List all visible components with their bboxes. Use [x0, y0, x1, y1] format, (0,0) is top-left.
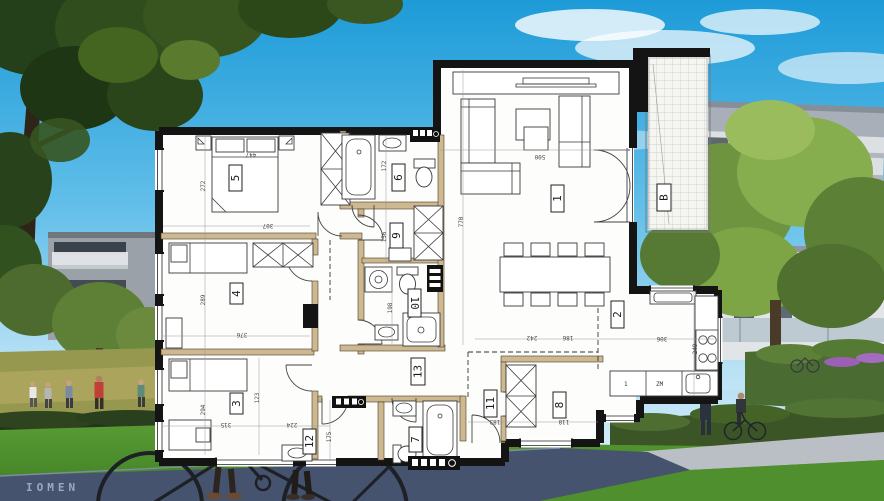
bathtub-icon — [342, 135, 375, 199]
svg-text:183: 183 — [489, 418, 500, 425]
shower-icon — [403, 313, 440, 346]
washing-machine-icon — [365, 267, 392, 292]
wardrobe-icon — [253, 243, 313, 267]
hall11-furniture — [506, 365, 536, 427]
side-table-icon — [524, 127, 548, 150]
cabinet-label: 1 — [624, 381, 628, 388]
vent-shaft — [332, 396, 366, 408]
sofa-icon — [461, 99, 495, 163]
fridge-icon — [650, 291, 696, 304]
svg-text:1: 1 — [551, 195, 564, 202]
svg-text:10: 10 — [408, 296, 421, 309]
room-label-room12: 12 — [303, 429, 316, 454]
dishwasher-label: ZM — [656, 381, 664, 388]
watermark-logo: IOMEN — [26, 481, 79, 494]
room-label-bedroom5: 5 — [229, 165, 242, 191]
vent-shaft — [410, 127, 440, 142]
wardrobe-icon — [414, 206, 443, 260]
vent-shaft — [427, 265, 443, 292]
svg-text:7: 7 — [409, 436, 422, 443]
svg-text:198: 198 — [387, 302, 394, 313]
bathtub-icon — [423, 401, 457, 459]
room-label-kitchen: 2 — [611, 301, 624, 328]
svg-text:500: 500 — [534, 153, 545, 160]
svg-text:447: 447 — [245, 151, 256, 158]
room-label-bath6: 6 — [392, 164, 405, 191]
sideboard-tv-icon — [453, 72, 619, 94]
svg-text:770: 770 — [458, 216, 465, 227]
svg-text:118: 118 — [558, 418, 569, 425]
wardrobe-icon — [506, 365, 536, 427]
room-label-balcony: B — [657, 184, 671, 211]
svg-text:307: 307 — [262, 222, 273, 229]
sink-icon — [379, 135, 406, 151]
svg-text:B: B — [658, 194, 671, 201]
room-label-bedroom4: 4 — [230, 283, 243, 304]
svg-text:8: 8 — [553, 402, 566, 409]
svg-text:13: 13 — [412, 365, 425, 378]
svg-text:172: 172 — [381, 160, 388, 171]
svg-text:4: 4 — [230, 290, 243, 297]
sink-icon — [393, 401, 416, 416]
room-label-living: 1 — [551, 185, 564, 212]
room-label-bath10: 10 — [408, 289, 421, 317]
room-label-bedroom3: 3 — [230, 393, 243, 414]
svg-text:306: 306 — [656, 335, 667, 342]
svg-text:9: 9 — [390, 232, 403, 239]
floorplan-visualization: 1 ZM 272 289 294 307 376 315 — [0, 0, 884, 501]
room-label-bath7: 7 — [409, 427, 422, 452]
room-label-hall11: 11 — [484, 390, 497, 417]
svg-text:123: 123 — [254, 392, 261, 403]
svg-text:249: 249 — [692, 343, 699, 354]
svg-text:289: 289 — [200, 294, 207, 305]
sink-icon — [375, 325, 398, 340]
svg-text:3: 3 — [230, 400, 243, 407]
sofa-icon — [559, 96, 590, 167]
svg-text:315: 315 — [220, 421, 231, 428]
svg-text:242: 242 — [526, 334, 537, 341]
svg-text:2: 2 — [611, 311, 624, 318]
sofa-icon — [461, 163, 520, 194]
svg-text:186: 186 — [562, 334, 573, 341]
svg-text:12: 12 — [303, 435, 316, 448]
svg-text:376: 376 — [236, 331, 247, 338]
bedroom5-furniture — [196, 133, 350, 212]
room-label-wardrobe9: 9 — [390, 223, 403, 248]
vent-shaft — [408, 456, 460, 470]
svg-text:175: 175 — [326, 431, 333, 442]
svg-text:294: 294 — [200, 404, 207, 415]
desk-icon — [166, 318, 182, 348]
svg-text:272: 272 — [200, 180, 207, 191]
room-label-corridor13: 13 — [411, 358, 425, 385]
svg-text:11: 11 — [484, 397, 497, 410]
room-label-room8: 8 — [553, 392, 566, 418]
svg-text:6: 6 — [392, 174, 405, 181]
svg-text:5: 5 — [229, 175, 242, 182]
balcony-floor — [646, 55, 710, 232]
svg-text:156: 156 — [381, 231, 388, 242]
scene-canvas: 1 ZM 272 289 294 307 376 315 — [0, 0, 884, 501]
svg-text:224: 224 — [286, 421, 297, 428]
